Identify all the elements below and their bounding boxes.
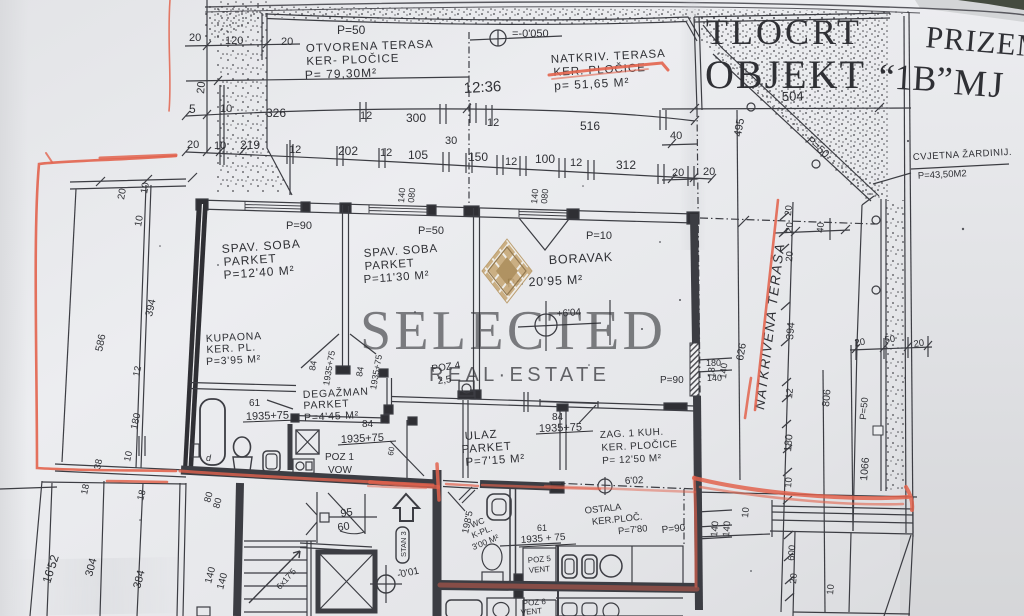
- svg-text:20: 20: [788, 573, 800, 584]
- svg-text:10: 10: [214, 140, 226, 152]
- svg-text:84: 84: [307, 360, 319, 372]
- svg-text:202: 202: [338, 144, 358, 158]
- svg-text:6'02: 6'02: [625, 475, 645, 487]
- svg-text:080: 080: [406, 187, 417, 203]
- svg-text:P=90: P=90: [286, 220, 312, 232]
- svg-text:120: 120: [225, 35, 243, 47]
- svg-text:600: 600: [786, 545, 798, 562]
- svg-text:5: 5: [189, 102, 196, 116]
- svg-text:84: 84: [354, 366, 366, 378]
- svg-text:312: 312: [616, 158, 636, 172]
- svg-text:20: 20: [783, 205, 795, 216]
- svg-text:140: 140: [718, 363, 730, 380]
- svg-text:40: 40: [815, 222, 827, 233]
- svg-text:12: 12: [784, 388, 796, 399]
- svg-text:TLOCRT: TLOCRT: [706, 12, 862, 52]
- svg-text:105: 105: [408, 148, 428, 162]
- svg-text:10: 10: [825, 584, 837, 595]
- svg-text:12: 12: [131, 365, 144, 378]
- svg-text:100: 100: [535, 152, 555, 166]
- svg-text:VENT: VENT: [520, 606, 542, 616]
- svg-text:12: 12: [380, 147, 392, 159]
- svg-text:84: 84: [362, 419, 374, 430]
- svg-text:516: 516: [580, 119, 600, 133]
- svg-text:1066: 1066: [858, 457, 872, 481]
- svg-text:=-0'050: =-0'050: [512, 28, 549, 40]
- svg-text:18: 18: [706, 367, 718, 378]
- svg-text:60: 60: [337, 520, 351, 534]
- svg-text:STAN 3: STAN 3: [399, 531, 408, 557]
- svg-text:18: 18: [79, 483, 92, 496]
- svg-text:080: 080: [539, 188, 550, 204]
- svg-text:P=10: P=10: [586, 230, 612, 242]
- svg-text:VOW: VOW: [328, 465, 352, 476]
- svg-text:61: 61: [537, 523, 547, 533]
- svg-text:“1B”: “1B”: [878, 56, 954, 100]
- svg-text:394: 394: [784, 322, 797, 341]
- svg-text:P=50: P=50: [858, 397, 871, 420]
- svg-text:180: 180: [782, 434, 795, 453]
- svg-text:20: 20: [189, 32, 201, 44]
- svg-text:P= 79,30M²: P= 79,30M²: [305, 66, 378, 83]
- svg-text:VENT: VENT: [528, 564, 550, 575]
- svg-text:REAL·ESTATE: REAL·ESTATE: [429, 364, 613, 386]
- svg-text:326: 326: [266, 106, 286, 120]
- svg-text:40: 40: [670, 130, 682, 142]
- svg-text:P=90: P=90: [660, 375, 684, 386]
- svg-text:20: 20: [854, 337, 866, 349]
- svg-text:20: 20: [281, 36, 293, 48]
- svg-text:806: 806: [820, 389, 833, 408]
- svg-text:20: 20: [913, 338, 925, 350]
- svg-text:12: 12: [360, 110, 372, 122]
- svg-text:10: 10: [783, 477, 795, 488]
- svg-text:20: 20: [195, 81, 208, 94]
- svg-text:SELECTED: SELECTED: [360, 300, 666, 362]
- svg-text:300: 300: [406, 111, 426, 125]
- svg-text:20: 20: [187, 139, 199, 151]
- svg-text:12: 12: [505, 156, 517, 168]
- svg-text:20: 20: [784, 251, 796, 262]
- svg-text:95: 95: [340, 506, 354, 520]
- svg-text:12: 12: [289, 144, 301, 156]
- svg-text:12: 12: [570, 157, 582, 169]
- svg-text:OBJEKT: OBJEKT: [705, 52, 866, 97]
- svg-text:20: 20: [703, 166, 715, 178]
- svg-text:50: 50: [884, 334, 896, 346]
- svg-text:MJ: MJ: [952, 62, 1006, 106]
- svg-text:P=50: P=50: [337, 23, 366, 37]
- svg-text:61: 61: [249, 398, 261, 409]
- svg-text:140: 140: [721, 521, 733, 538]
- svg-text:12: 12: [487, 117, 499, 129]
- svg-text:30: 30: [445, 135, 457, 147]
- svg-text:12:36: 12:36: [463, 78, 501, 97]
- svg-text:ULAZ: ULAZ: [464, 429, 497, 443]
- svg-text:10: 10: [220, 103, 232, 115]
- svg-text:POZ 1: POZ 1: [325, 452, 354, 463]
- svg-text:20: 20: [672, 167, 684, 179]
- svg-text:1935+75: 1935+75: [341, 432, 385, 446]
- svg-text:150: 150: [468, 150, 488, 164]
- svg-text:10: 10: [740, 507, 752, 518]
- svg-text:10: 10: [122, 450, 135, 463]
- svg-text:140: 140: [709, 521, 721, 538]
- svg-text:219: 219: [240, 138, 260, 152]
- svg-text:P=50: P=50: [418, 225, 444, 237]
- svg-text:20: 20: [784, 222, 796, 233]
